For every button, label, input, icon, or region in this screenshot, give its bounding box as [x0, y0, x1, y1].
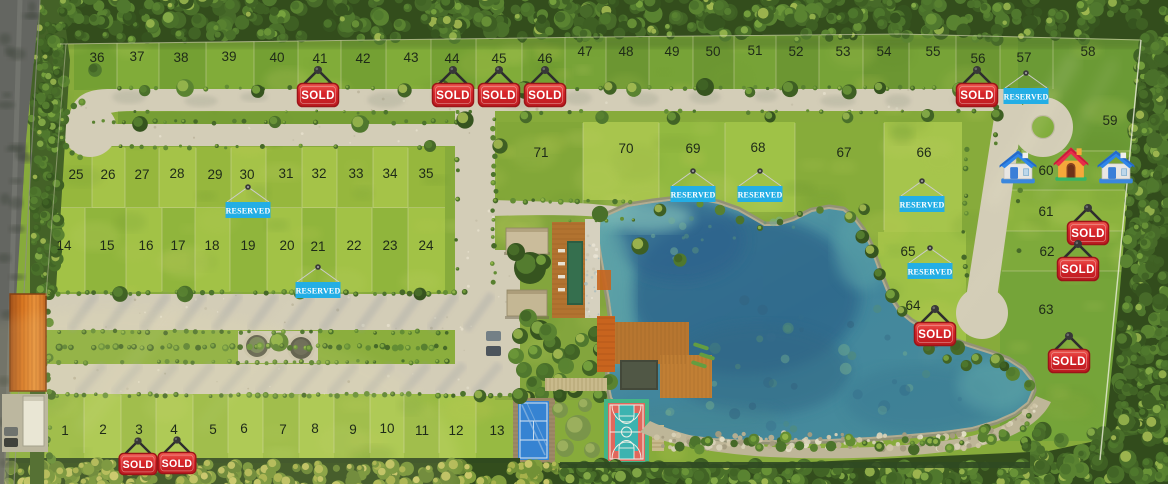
- svg-text:65: 65: [900, 244, 915, 259]
- svg-text:2: 2: [99, 422, 107, 437]
- svg-text:3: 3: [135, 422, 143, 437]
- svg-text:19: 19: [240, 238, 255, 253]
- svg-text:SOLD: SOLD: [1071, 228, 1105, 240]
- svg-text:71: 71: [533, 145, 548, 160]
- svg-text:SOLD: SOLD: [918, 329, 952, 341]
- svg-text:13: 13: [489, 423, 504, 438]
- svg-text:5: 5: [209, 422, 217, 437]
- svg-text:9: 9: [349, 422, 357, 437]
- svg-text:6: 6: [240, 421, 248, 436]
- svg-text:14: 14: [56, 238, 72, 253]
- svg-text:34: 34: [382, 166, 398, 181]
- svg-text:23: 23: [382, 238, 397, 253]
- svg-text:RESERVED: RESERVED: [671, 191, 716, 200]
- svg-text:10: 10: [379, 421, 394, 436]
- svg-text:SOLD: SOLD: [436, 90, 470, 102]
- svg-text:43: 43: [403, 50, 418, 65]
- svg-text:55: 55: [925, 44, 940, 59]
- svg-text:SOLD: SOLD: [123, 459, 154, 471]
- svg-text:32: 32: [311, 166, 326, 181]
- svg-text:18: 18: [204, 238, 219, 253]
- svg-text:39: 39: [221, 49, 236, 64]
- svg-text:22: 22: [346, 238, 361, 253]
- svg-text:51: 51: [747, 43, 762, 58]
- svg-text:36: 36: [89, 50, 104, 65]
- svg-text:12: 12: [448, 423, 463, 438]
- svg-text:54: 54: [876, 44, 892, 59]
- svg-text:15: 15: [99, 238, 114, 253]
- svg-text:52: 52: [788, 44, 803, 59]
- svg-text:58: 58: [1080, 44, 1095, 59]
- svg-text:20: 20: [279, 238, 294, 253]
- svg-text:RESERVED: RESERVED: [226, 207, 271, 216]
- svg-text:21: 21: [310, 239, 325, 254]
- svg-text:64: 64: [905, 298, 921, 313]
- svg-text:4: 4: [170, 422, 178, 437]
- svg-text:33: 33: [348, 166, 363, 181]
- svg-text:SOLD: SOLD: [482, 90, 516, 102]
- svg-text:24: 24: [418, 238, 434, 253]
- svg-text:RESERVED: RESERVED: [900, 201, 945, 210]
- svg-text:28: 28: [169, 166, 184, 181]
- svg-text:SOLD: SOLD: [162, 458, 193, 470]
- svg-text:RESERVED: RESERVED: [1004, 93, 1049, 102]
- svg-text:66: 66: [916, 145, 931, 160]
- svg-text:59: 59: [1102, 113, 1117, 128]
- svg-text:SOLD: SOLD: [301, 90, 335, 102]
- svg-text:70: 70: [618, 141, 633, 156]
- svg-text:45: 45: [491, 51, 506, 66]
- svg-text:44: 44: [444, 51, 460, 66]
- svg-text:61: 61: [1038, 204, 1053, 219]
- svg-text:RESERVED: RESERVED: [908, 268, 953, 277]
- svg-text:SOLD: SOLD: [1061, 264, 1095, 276]
- svg-text:49: 49: [664, 44, 679, 59]
- svg-text:37: 37: [129, 49, 144, 64]
- svg-text:25: 25: [68, 167, 83, 182]
- svg-text:50: 50: [705, 44, 720, 59]
- svg-text:16: 16: [138, 238, 153, 253]
- svg-text:8: 8: [311, 421, 319, 436]
- svg-text:11: 11: [415, 423, 429, 438]
- svg-text:56: 56: [970, 51, 985, 66]
- svg-text:26: 26: [100, 167, 115, 182]
- svg-text:69: 69: [685, 141, 700, 156]
- svg-text:63: 63: [1038, 302, 1053, 317]
- svg-text:RESERVED: RESERVED: [738, 191, 783, 200]
- svg-text:48: 48: [618, 44, 633, 59]
- svg-text:42: 42: [355, 51, 370, 66]
- svg-text:67: 67: [836, 145, 851, 160]
- svg-text:1: 1: [61, 423, 69, 438]
- svg-text:SOLD: SOLD: [960, 90, 994, 102]
- svg-text:7: 7: [279, 422, 287, 437]
- svg-text:27: 27: [134, 167, 149, 182]
- svg-text:SOLD: SOLD: [528, 90, 562, 102]
- svg-text:57: 57: [1016, 50, 1031, 65]
- svg-text:68: 68: [750, 140, 765, 155]
- svg-text:30: 30: [239, 167, 254, 182]
- svg-text:35: 35: [418, 166, 433, 181]
- svg-text:38: 38: [173, 50, 188, 65]
- svg-text:60: 60: [1038, 163, 1053, 178]
- svg-text:62: 62: [1039, 244, 1054, 259]
- svg-text:SOLD: SOLD: [1052, 356, 1086, 368]
- svg-text:46: 46: [537, 51, 552, 66]
- svg-text:47: 47: [577, 44, 592, 59]
- svg-text:41: 41: [312, 51, 327, 66]
- svg-text:53: 53: [835, 44, 850, 59]
- svg-text:40: 40: [269, 50, 284, 65]
- svg-text:RESERVED: RESERVED: [296, 287, 341, 296]
- svg-text:17: 17: [170, 238, 185, 253]
- svg-text:29: 29: [207, 167, 222, 182]
- svg-text:31: 31: [278, 166, 293, 181]
